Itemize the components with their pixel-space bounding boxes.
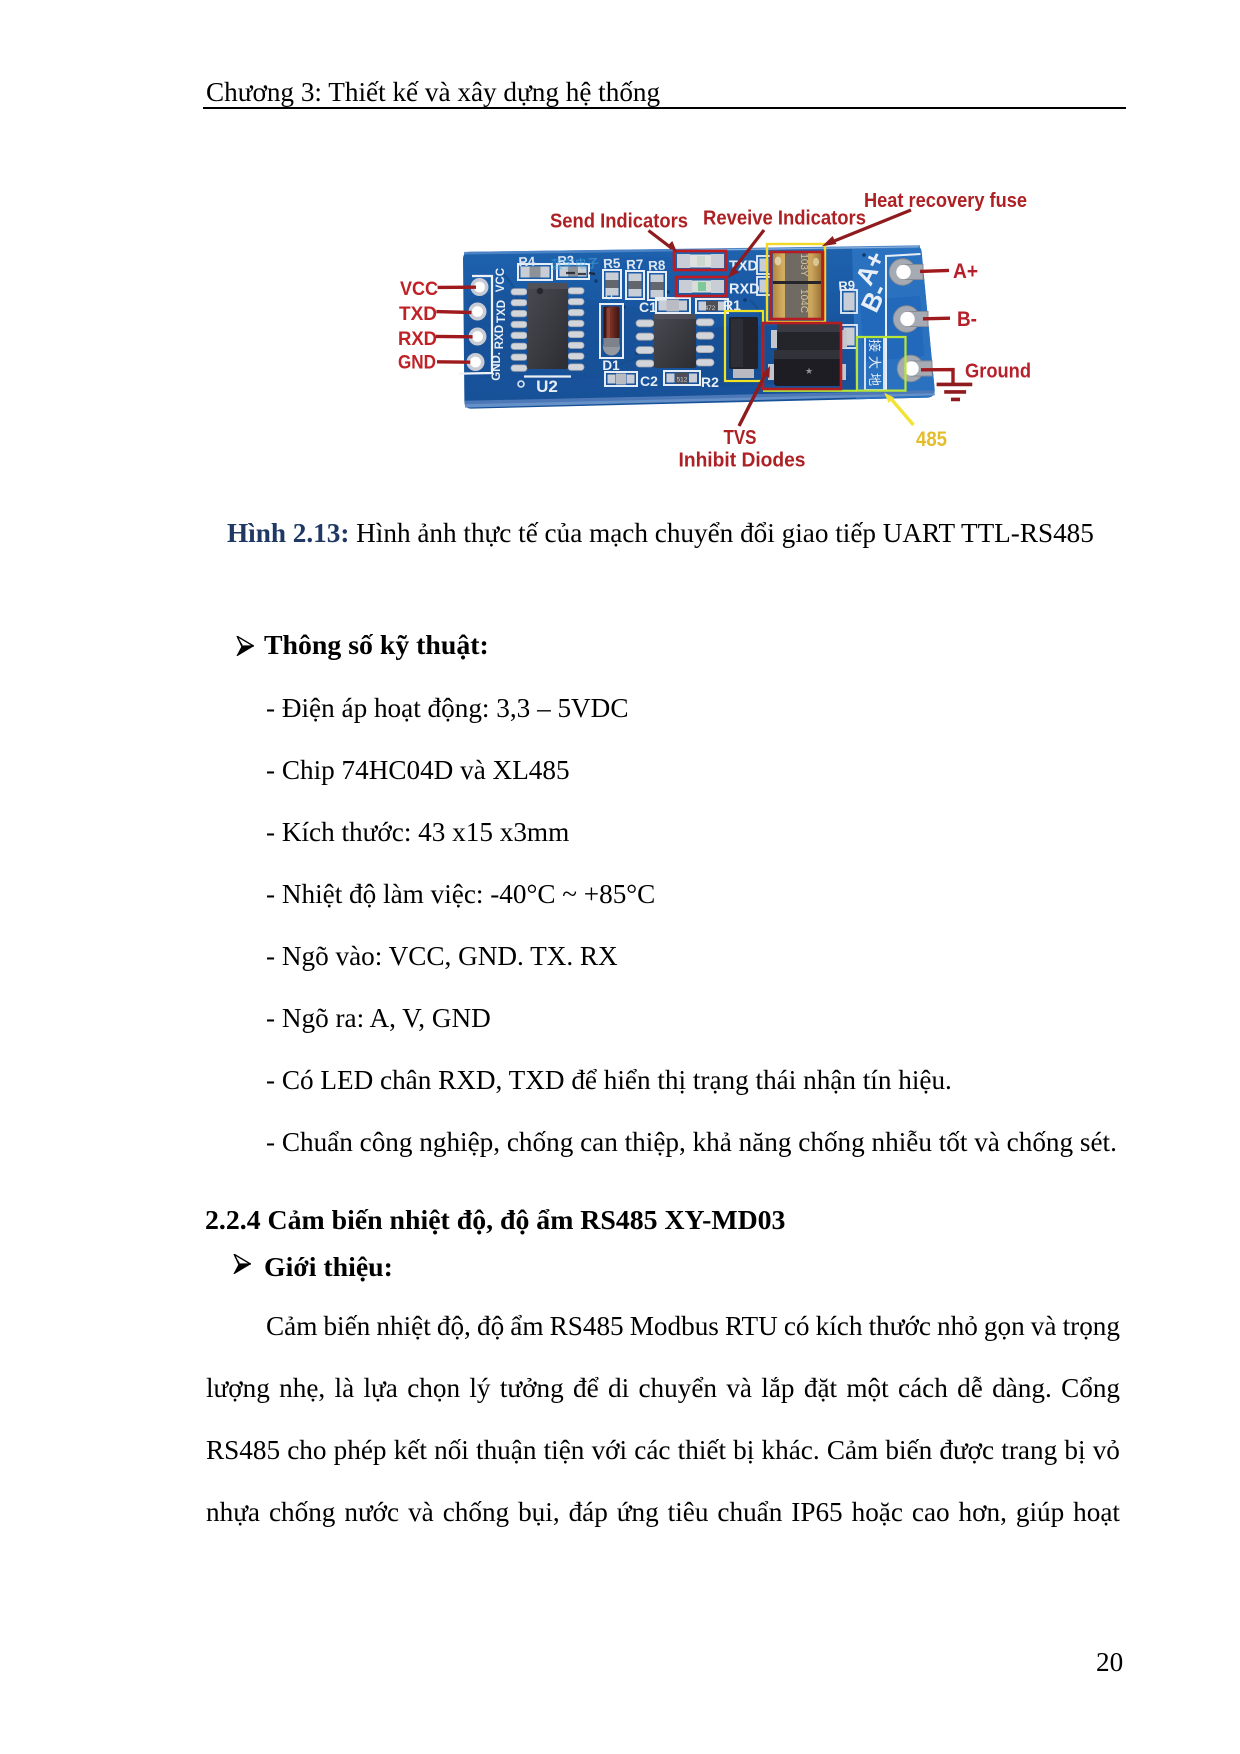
svg-text:Reveive Indicators: Reveive Indicators [703,207,866,230]
svg-text:Ground: Ground [965,360,1031,383]
svg-text:D1: D1 [602,358,620,373]
svg-text:RXD: RXD [494,325,506,349]
svg-text:GND: GND [398,352,436,374]
svg-text:R7: R7 [626,257,644,273]
svg-text:R8: R8 [648,258,667,274]
svg-text:R2: R2 [701,374,719,390]
svg-text:512: 512 [677,377,688,384]
svg-text:U2: U2 [536,377,558,396]
svg-text:C1: C1 [639,299,657,315]
svg-text:Send Indicators: Send Indicators [550,210,688,233]
svg-text:RXD: RXD [398,328,437,350]
svg-text:GND.: GND. [491,352,503,381]
svg-text:Heat recovery fuse: Heat recovery fuse [864,189,1027,212]
svg-text:大: 大 [867,356,882,369]
svg-text:地: 地 [867,373,882,386]
svg-text:485: 485 [916,427,947,451]
svg-text:VCC: VCC [495,268,507,292]
svg-text:103Y: 103Y [798,253,809,277]
svg-text:★: ★ [805,366,813,376]
svg-text:VCC: VCC [400,278,438,300]
svg-text:R5: R5 [603,256,622,272]
svg-text:C2: C2 [640,373,658,389]
svg-text:Inhibit Diodes: Inhibit Diodes [679,449,806,472]
svg-text:接: 接 [867,339,882,352]
svg-text:TXD: TXD [399,303,437,325]
svg-text:R4: R4 [518,254,536,270]
svg-text:B-: B- [957,307,977,331]
svg-text:蓝宇电子: 蓝宇电子 [551,256,599,272]
svg-text:A+: A+ [953,259,978,283]
svg-text:104C: 104C [798,289,809,313]
svg-text:472: 472 [705,305,716,312]
svg-text:RXD: RXD [729,282,760,298]
svg-text:TVS: TVS [724,426,757,449]
svg-text:TXD: TXD [496,300,508,323]
